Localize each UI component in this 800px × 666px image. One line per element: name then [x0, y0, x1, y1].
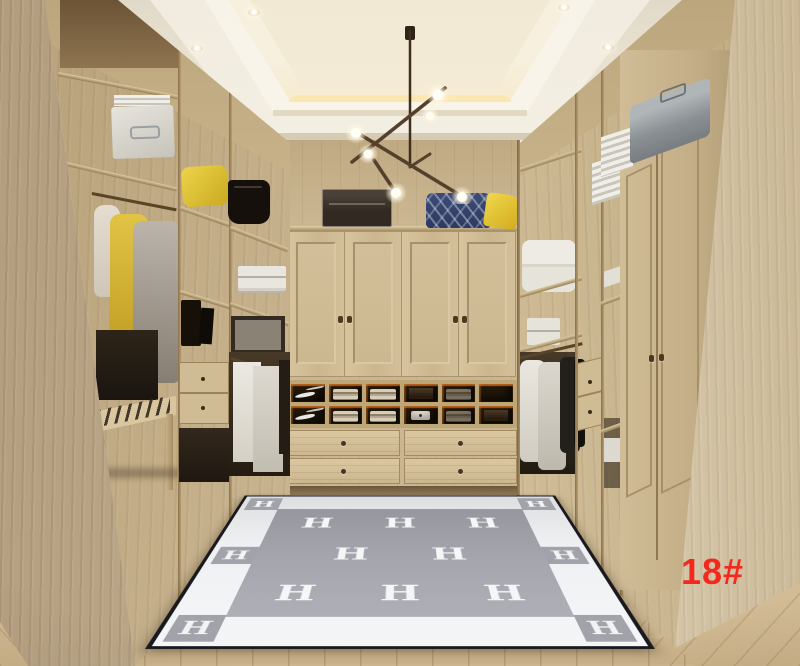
handbag — [228, 180, 270, 224]
branch-chandelier — [330, 22, 480, 204]
door-panel — [626, 163, 652, 498]
cubby-dark — [479, 384, 513, 402]
wardrobe-door — [344, 231, 402, 377]
door-knob — [462, 316, 467, 323]
drawer — [287, 458, 400, 484]
cubby-dark — [479, 406, 513, 424]
small-drawers — [179, 362, 229, 424]
small-drawers — [577, 357, 603, 431]
yellow-pillow — [483, 192, 520, 230]
door-knob — [659, 354, 664, 361]
shelf — [229, 226, 288, 252]
toe-kick — [285, 486, 518, 495]
cubby-folded-clothes — [366, 384, 400, 402]
cubby-box — [404, 406, 438, 424]
wardrobe-door — [401, 231, 459, 377]
downlight-icon — [191, 45, 203, 52]
downlight-icon — [248, 9, 260, 16]
cabinet-divider — [601, 0, 604, 666]
cubby-shoes — [291, 384, 325, 402]
drawer-bank — [404, 430, 517, 486]
cubby-folded-clothes — [442, 384, 476, 402]
door-panel — [661, 131, 699, 494]
cubby-folded-clothes — [329, 406, 363, 424]
framed-box — [231, 316, 285, 354]
drawer-knob — [588, 410, 592, 414]
shelf — [58, 160, 178, 191]
drawer — [404, 430, 517, 456]
door-knob — [453, 316, 458, 323]
drawer-bank — [287, 430, 400, 486]
drawer-knob — [201, 377, 205, 381]
cubby-folded-clothes — [329, 384, 363, 402]
drawer-knob — [588, 380, 592, 384]
cubby-grid — [287, 380, 517, 428]
wardrobe-door — [287, 231, 345, 377]
cubby-shoes — [291, 406, 325, 424]
downlight-icon — [602, 44, 614, 51]
watermark-label: 18# — [681, 551, 744, 593]
yellow-pillow — [181, 164, 230, 207]
drawer — [404, 458, 517, 484]
storage-bin — [111, 105, 175, 159]
walk-in-closet-photo: H H H H H H H H H H H H H H — [0, 0, 800, 666]
door-knob — [347, 316, 352, 323]
chandelier-rod — [410, 154, 430, 167]
vanity-niche — [96, 330, 158, 400]
vanity-leg — [166, 414, 173, 490]
white-box-stack — [238, 266, 286, 288]
shelf-item-dark — [199, 308, 214, 345]
door-knob — [649, 355, 654, 362]
cubby-folded-clothes — [442, 406, 476, 424]
downlight-icon — [558, 4, 570, 11]
drawer — [287, 430, 400, 456]
door-knob — [338, 316, 343, 323]
lower-cubby-dark — [179, 428, 229, 482]
shelf — [179, 206, 229, 227]
cubby-dark — [404, 384, 438, 402]
cubby-folded-clothes — [366, 406, 400, 424]
door-gap — [656, 128, 658, 560]
drawer-knob — [201, 406, 205, 410]
wardrobe-door — [458, 231, 516, 377]
wall-seam — [517, 140, 520, 496]
